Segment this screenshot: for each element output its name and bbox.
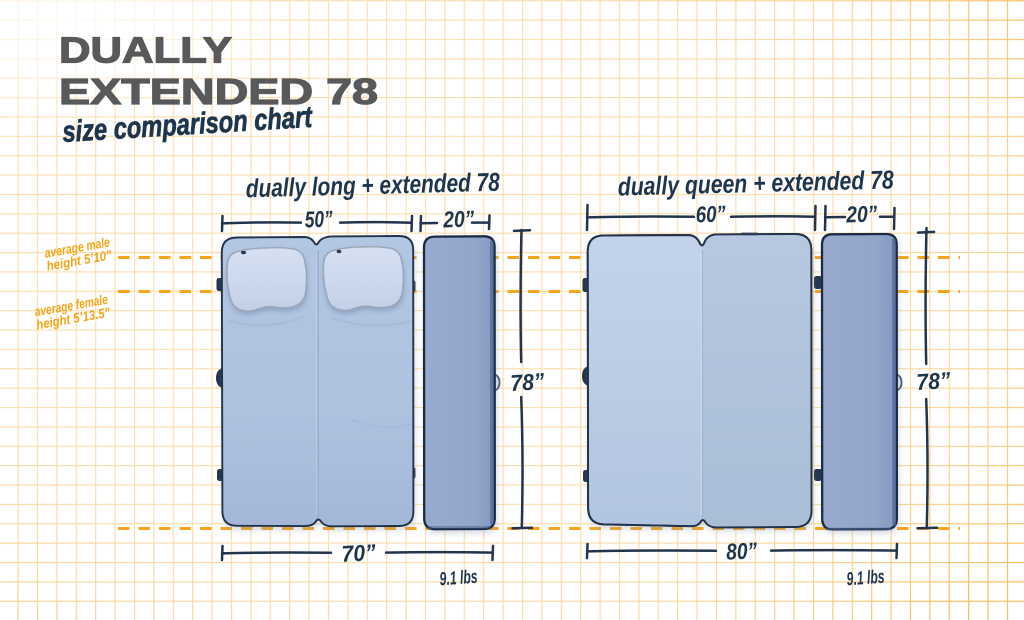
svg-text:50”: 50” (304, 206, 333, 233)
svg-text:78”: 78” (916, 367, 952, 395)
svg-text:DUALLY: DUALLY (59, 30, 232, 71)
svg-text:9.1 lbs: 9.1 lbs (439, 567, 478, 591)
svg-text:20”: 20” (845, 200, 878, 227)
svg-text:80”: 80” (725, 537, 758, 565)
svg-text:70”: 70” (341, 539, 377, 567)
svg-text:60”: 60” (695, 200, 726, 227)
svg-text:20”: 20” (442, 205, 475, 232)
svg-text:78”: 78” (510, 368, 546, 396)
svg-text:9.1 lbs: 9.1 lbs (846, 567, 885, 591)
